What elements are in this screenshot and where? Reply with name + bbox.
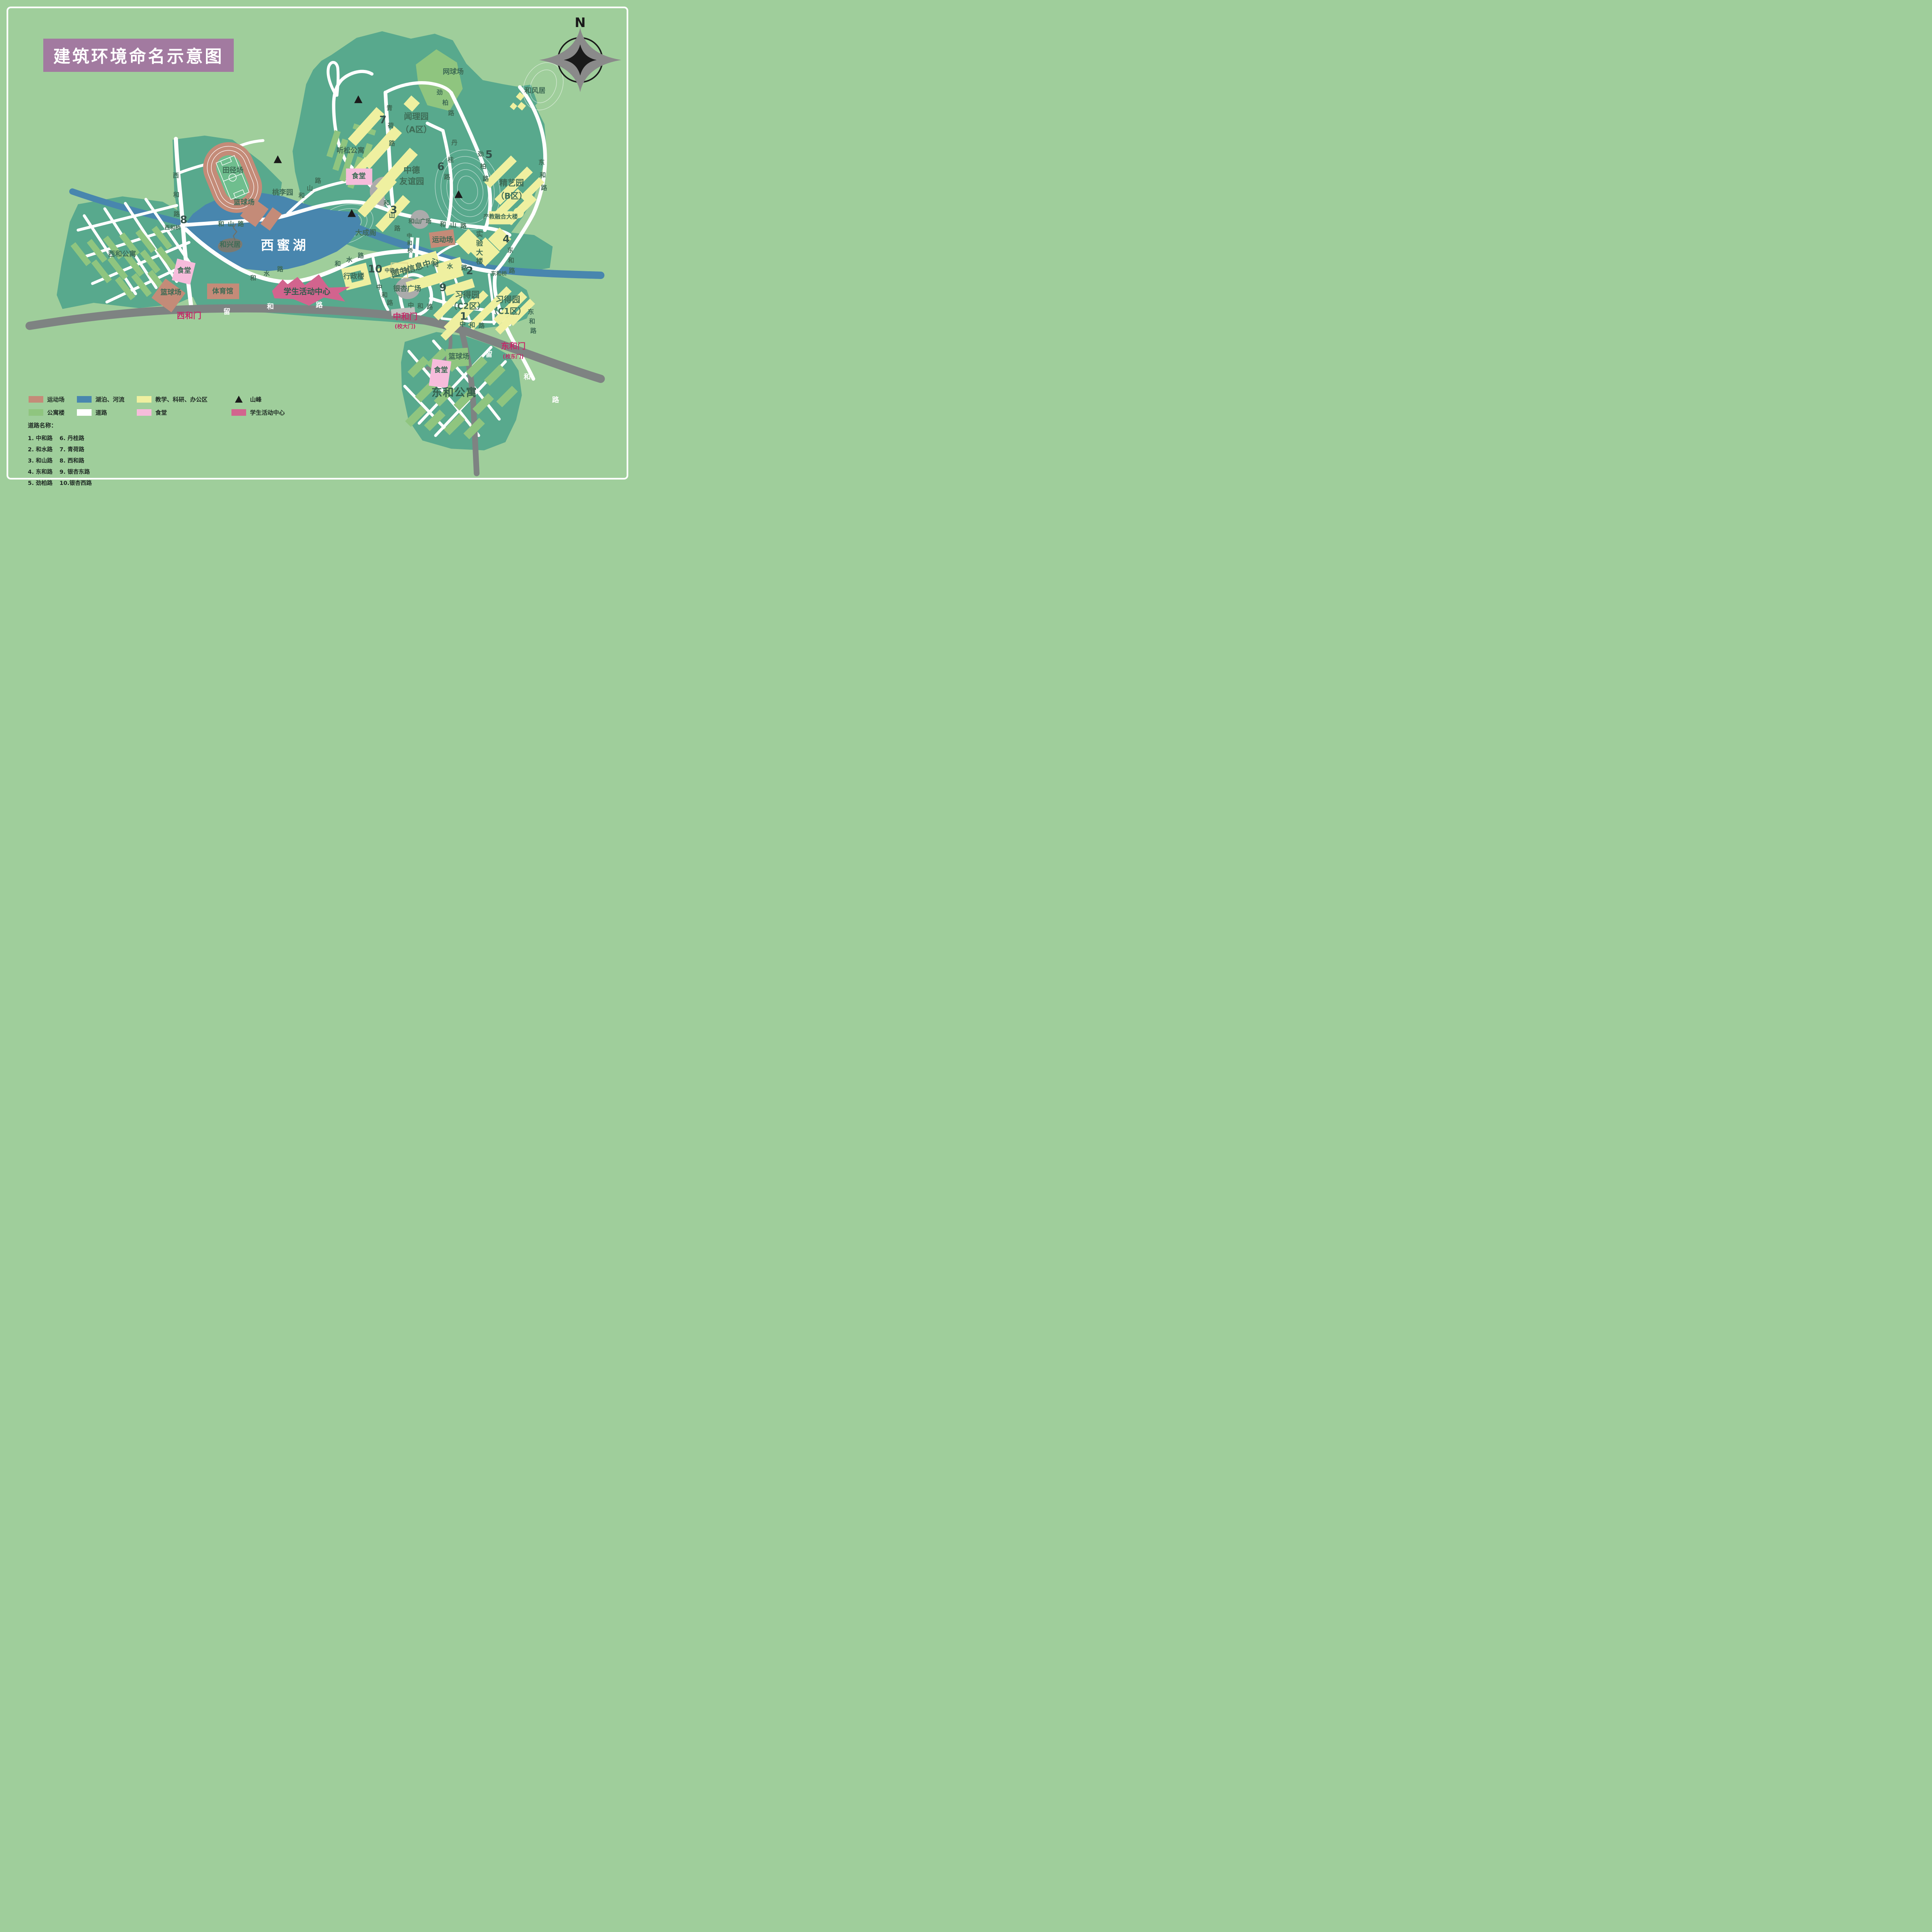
map-label-zhongde-hall: 中德合作馆 (384, 267, 409, 274)
road-name-row-4: 4. 东和路9. 银杏东路 (28, 467, 92, 478)
map-label-num-9: 9 (439, 282, 447, 294)
road-name-entry: 8. 西和路 (60, 456, 84, 467)
compass (539, 28, 621, 92)
map-label-jingyiyuan-2: （B区） (496, 192, 527, 201)
legend-item-食堂: 食堂 (137, 408, 231, 417)
map-label-gate-east: 东和门 (501, 341, 526, 351)
map-label-liuhe-road-2a: 留 (485, 350, 492, 359)
map-label-canteen-west: 食堂 (177, 266, 191, 275)
legend-label: 食堂 (155, 408, 167, 417)
road-name-entry: 2. 和水路 (28, 444, 60, 456)
map-label-track-field: 田径场 (223, 166, 243, 175)
map-label-liuhe-road-2b: 和 (524, 373, 531, 381)
map-label-num-5: 5 (485, 148, 493, 160)
mountain-peak-icon (235, 396, 243, 403)
map-label-xideyuan-c1-2: （C1区） (490, 306, 526, 316)
legend-label: 公寓楼 (47, 408, 65, 417)
road-name-entry: 9. 银杏东路 (60, 467, 90, 478)
legend-label: 运动场 (47, 395, 65, 403)
map-label-student-center: 学生活动中心 (284, 287, 330, 296)
legend-swatch (137, 409, 151, 416)
road-names-list: 道路名称： 1. 中和路6. 丹桂路2. 和水路7. 青荷路3. 和山路8. 西… (28, 421, 92, 486)
map-label-donghe-road-s: 东和路 (528, 308, 537, 334)
mountain-peak-icon-2 (274, 155, 282, 163)
legend-swatch (29, 409, 43, 416)
legend-label: 道路 (95, 408, 107, 417)
map-label-canteen-east: 食堂 (434, 366, 448, 374)
map-label-num-2: 2 (466, 265, 473, 277)
map-label-donghe-bridge: 东和桥 (491, 270, 507, 277)
map-label-ximihu-lake: 西蜜湖 (261, 238, 309, 253)
map-label-xideyuan-c2-2: （C2区） (449, 302, 485, 311)
map-label-chanjiao-bldg: 产教融合大楼 (483, 213, 518, 220)
map-label-zhongde-garden-1: 中德 (403, 166, 420, 175)
page-title: 建筑环境命名示意图 (43, 39, 234, 72)
map-label-liuhe-road-1b: 和 (267, 303, 274, 311)
road-name-row-2: 2. 和水路7. 青荷路 (28, 444, 92, 456)
map-label-yinxing-square: 银杏广场 (393, 284, 421, 293)
legend-item-道路: 道路 (77, 408, 137, 417)
map-label-xideyuan-c1-1: 习得园 (496, 295, 520, 305)
legend-item-湖泊、河流: 湖泊、河流 (77, 395, 137, 403)
road-name-entry: 5. 劲柏路 (28, 478, 60, 486)
map-label-basketball-center: 篮球场 (233, 198, 255, 207)
map-label-xihe-apartments: 西和公寓 (108, 250, 136, 259)
map-label-xideyuan-c2-1: 习得园 (455, 290, 480, 300)
map-label-liuhe-road-2c: 路 (552, 396, 560, 404)
road-name-row-5: 5. 劲柏路10.银杏西路 (28, 478, 92, 486)
legend-item-学生活动中心: 学生活动中心 (231, 408, 305, 417)
map-label-wenliyuan-2: （A区） (401, 125, 432, 134)
legend-item-山峰: 山峰 (231, 395, 305, 403)
legend-item-教学、科研、办公区: 教学、科研、办公区 (137, 395, 231, 403)
map-label-num-6: 6 (437, 161, 445, 173)
map-label-yundongchang: 运动场 (432, 236, 453, 244)
map-label-num-7: 7 (379, 114, 386, 126)
map-label-xihe-bridge: 西和桥 (165, 224, 181, 231)
legend-label: 湖泊、河流 (95, 395, 124, 403)
map-label-hefengju: 和风居 (524, 87, 545, 95)
map-label-taoliyuan: 桃李园 (272, 188, 293, 197)
map-label-basketball-east: 篮球场 (448, 352, 469, 361)
map-label-gymnasium: 体育馆 (212, 287, 233, 295)
map-label-num-4: 4 (503, 233, 510, 245)
map-label-zhongde-garden-2: 友谊园 (400, 176, 424, 186)
road-name-row-3: 3. 和山路8. 西和路 (28, 456, 92, 467)
legend-label: 学生活动中心 (250, 408, 285, 417)
map-label-wenliyuan-1: 闻理园 (404, 112, 429, 121)
legend-swatch (29, 396, 43, 403)
legend-swatch (231, 409, 246, 416)
map-label-gate-west: 西和门 (177, 311, 201, 321)
map-label-jingyiyuan-1: 精艺园 (499, 178, 524, 188)
map-label-hexingju: 和兴居 (219, 241, 240, 249)
map-label-zhonghe-bridge: 中和桥 (406, 233, 413, 254)
legend-item-公寓楼: 公寓楼 (29, 408, 77, 417)
map-label-heshan-road-s: 和山路 (218, 220, 244, 228)
map-label-liuhe-road-1c: 路 (316, 301, 323, 309)
campus-map-page: N网球场和风居劲柏路青荷路7闻理园（A区）听松公寓食堂桃李园田径场丹桂路6劲柏路… (0, 0, 635, 486)
road-name-row-1: 1. 中和路6. 丹桂路 (28, 433, 92, 444)
legend-swatch (137, 396, 151, 403)
legend-item-运动场: 运动场 (29, 395, 77, 403)
map-label-tennis-court: 网球场 (443, 68, 464, 76)
map-label-num-10: 10 (368, 263, 382, 275)
map-label-dachengge: 大成阁 (355, 228, 376, 237)
map-label-compass-n: N (575, 15, 585, 31)
map-label-num-3: 3 (390, 204, 398, 216)
road-names-heading: 道路名称： (28, 421, 92, 429)
map-label-admin-bldg: 行政楼 (343, 272, 364, 281)
road-name-entry: 1. 中和路 (28, 433, 60, 444)
road-name-entry: 6. 丹桂路 (60, 433, 84, 444)
map-label-donghe-apartments: 东和公寓 (432, 386, 478, 399)
map-label-tingsong-apt: 听松公寓 (337, 146, 364, 155)
legend: 运动场湖泊、河流教学、科研、办公区山峰公寓楼道路食堂学生活动中心 (29, 393, 305, 419)
road-name-entry: 7. 青荷路 (60, 444, 84, 456)
map-label-liuhe-road-1a: 留 (223, 307, 230, 316)
road-name-entry: 4. 东和路 (28, 467, 60, 478)
road-name-entry: 3. 和山路 (28, 456, 60, 467)
legend-label: 教学、科研、办公区 (155, 395, 207, 403)
legend-label: 山峰 (250, 395, 262, 403)
map-label-heshan-square: 和山广场 (408, 218, 432, 224)
map-label-basketball-west: 篮球场 (160, 288, 181, 296)
legend-swatch (77, 396, 92, 403)
map-label-gate-east-sub: (校东门) (503, 353, 524, 360)
map-label-gate-center-sub: (校大门) (395, 323, 415, 330)
map-label-canteen-north: 食堂 (351, 172, 366, 180)
road-name-entry: 10.银杏西路 (60, 478, 92, 486)
legend-swatch (77, 409, 92, 416)
map-label-gate-center: 中和门 (393, 311, 418, 321)
map-label-num-8: 8 (180, 214, 187, 226)
